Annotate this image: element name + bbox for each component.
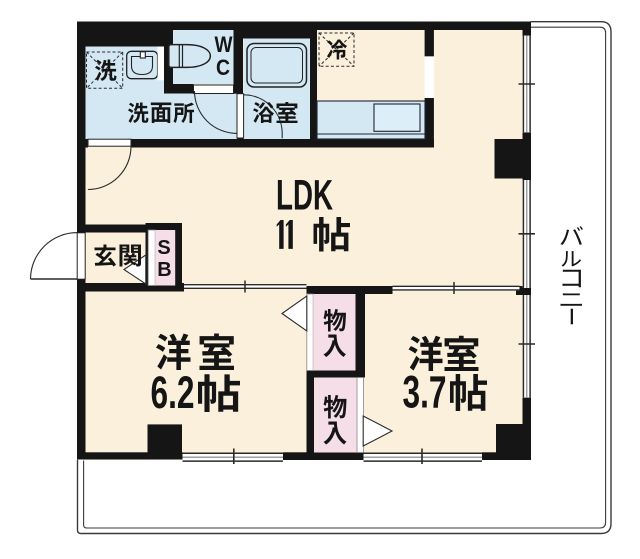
svg-text:3.7: 3.7 bbox=[403, 367, 447, 418]
svg-text:W: W bbox=[215, 32, 234, 57]
svg-text:S: S bbox=[157, 237, 170, 259]
svg-text:C: C bbox=[216, 55, 230, 80]
svg-text:LDK: LDK bbox=[276, 172, 333, 220]
svg-text:B: B bbox=[157, 259, 171, 281]
svg-text:6.2: 6.2 bbox=[151, 367, 195, 418]
